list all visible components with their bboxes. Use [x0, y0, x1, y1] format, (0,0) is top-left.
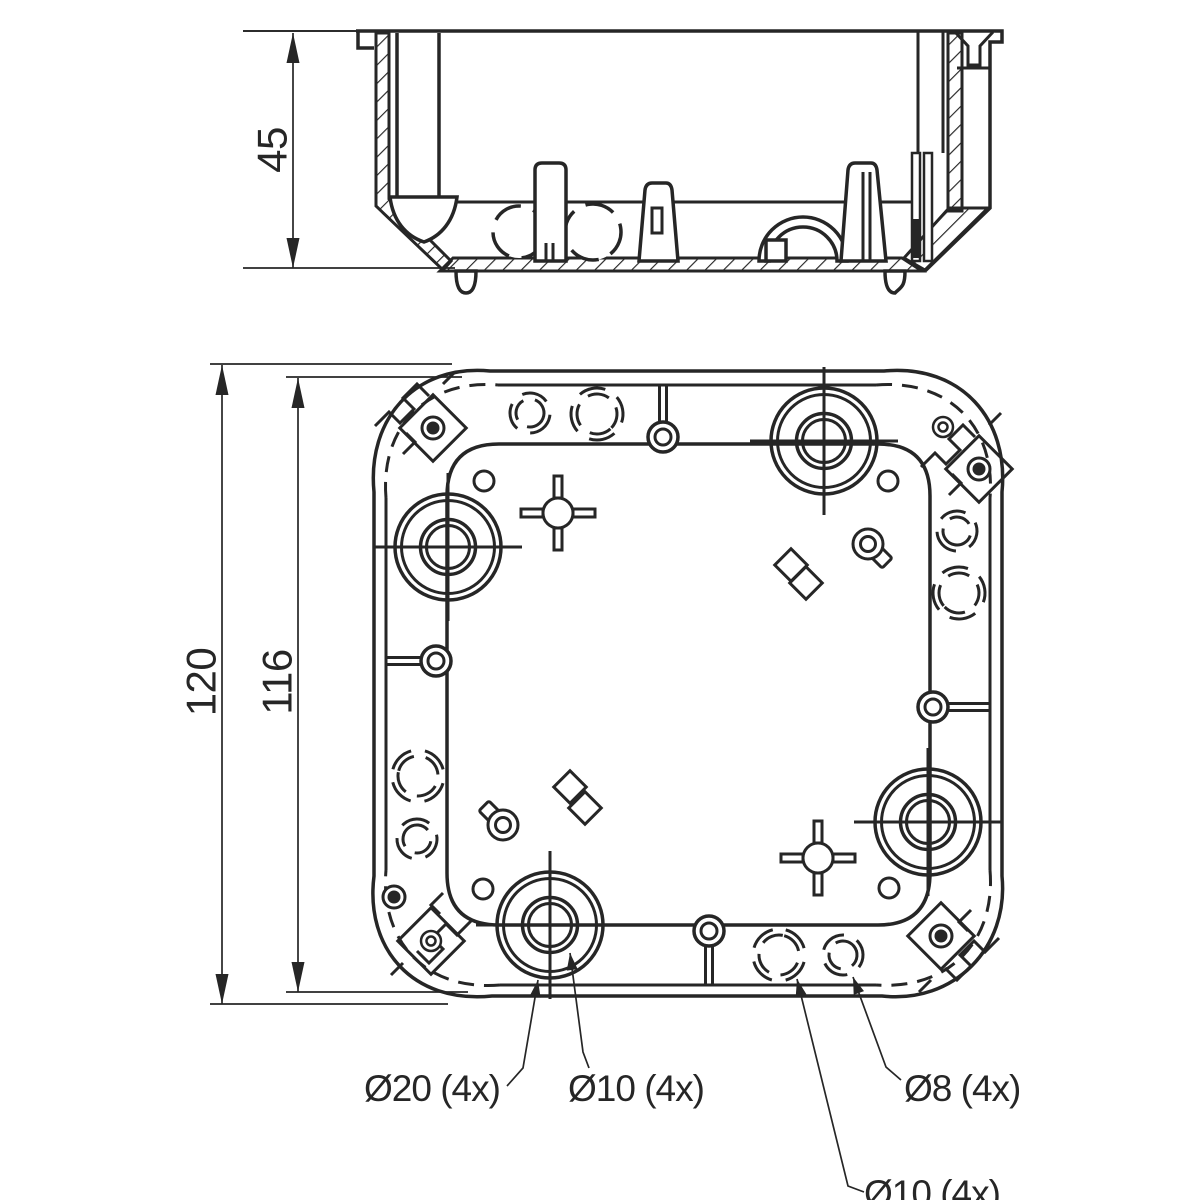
eyelet-outer	[648, 422, 678, 452]
junction-box-drawing: 45 120 116 Ø20 (4x) Ø10 (4x) Ø8 (4x) Ø10…	[0, 0, 1200, 1200]
clip-screw-dot	[973, 463, 986, 476]
cross-arm	[781, 854, 803, 862]
label-knockout-d10-center: Ø10 (4x)	[568, 1068, 704, 1109]
cross-center	[543, 498, 573, 528]
cross-arm	[833, 854, 855, 862]
drawing-background	[0, 0, 1200, 1200]
eyelet-outer	[918, 692, 948, 722]
cross-arm	[573, 509, 595, 517]
section-detail	[766, 240, 786, 261]
cross-arm	[554, 528, 562, 550]
dimension-120-text: 120	[178, 648, 225, 717]
label-knockout-d20: Ø20 (4x)	[364, 1068, 500, 1109]
section-outline	[948, 33, 962, 211]
technical-drawing-page: 45 120 116 Ø20 (4x) Ø10 (4x) Ø8 (4x) Ø10…	[0, 0, 1200, 1200]
section-detail	[639, 183, 678, 261]
cross-arm	[814, 821, 822, 843]
dimension-116-text: 116	[254, 649, 301, 714]
cross-arm	[521, 509, 543, 517]
cross-arm	[814, 873, 822, 895]
cross-center	[803, 843, 833, 873]
eyelet-outer	[694, 916, 724, 946]
section-detail	[456, 271, 476, 293]
clip-screw-dot	[935, 930, 948, 943]
clip-ring-open	[933, 417, 953, 437]
eyelet-outer	[421, 646, 451, 676]
clip-screw-dot	[388, 891, 401, 904]
clip-ring-open	[421, 931, 441, 951]
section-detail	[535, 163, 566, 261]
label-knockout-d8-wall: Ø8 (4x)	[904, 1068, 1020, 1109]
section-detail	[913, 219, 919, 258]
dimension-45-text: 45	[249, 127, 296, 173]
clip-screw-dot	[427, 422, 440, 435]
cross-arm	[554, 476, 562, 498]
label-knockout-d10-wall: Ø10 (4x)	[864, 1173, 1000, 1200]
